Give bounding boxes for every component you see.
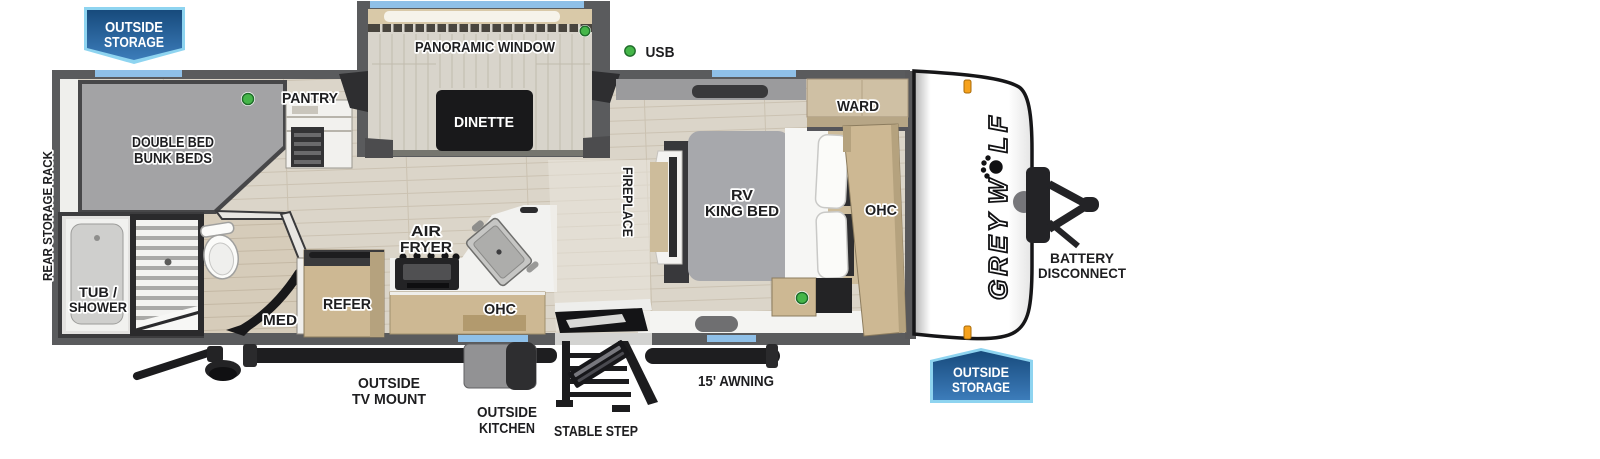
svg-text:KITCHEN: KITCHEN (479, 420, 535, 437)
svg-text:DINETTE: DINETTE (454, 114, 514, 131)
svg-text:DISCONNECT: DISCONNECT (1038, 265, 1126, 281)
svg-text:RV: RV (731, 187, 753, 204)
svg-text:BUNK BEDS: BUNK BEDS (134, 150, 212, 167)
svg-text:OUTSIDE: OUTSIDE (358, 375, 420, 392)
svg-text:PANTRY: PANTRY (282, 90, 338, 107)
svg-text:LF: LF (983, 111, 1013, 153)
svg-text:BATTERY: BATTERY (1050, 250, 1115, 266)
svg-text:AIR: AIR (411, 223, 441, 240)
svg-text:15' AWNING: 15' AWNING (698, 373, 774, 390)
svg-text:STORAGE: STORAGE (104, 34, 164, 51)
svg-text:FRYER: FRYER (400, 239, 452, 256)
svg-text:STORAGE: STORAGE (952, 380, 1010, 395)
svg-text:KING BED: KING BED (705, 203, 779, 220)
svg-text:FIREPLACE: FIREPLACE (620, 167, 636, 237)
svg-text:OHC: OHC (865, 203, 898, 219)
svg-text:SHOWER: SHOWER (69, 299, 127, 315)
svg-text:STABLE STEP: STABLE STEP (554, 423, 638, 440)
svg-text:REFER: REFER (323, 296, 371, 313)
svg-text:TUB /: TUB / (79, 284, 117, 300)
svg-text:W: W (983, 177, 1013, 204)
svg-text:PANORAMIC WINDOW: PANORAMIC WINDOW (415, 39, 556, 56)
svg-text:DOUBLE BED: DOUBLE BED (132, 134, 214, 151)
svg-text:USB: USB (646, 45, 675, 61)
svg-text:OUTSIDE: OUTSIDE (953, 365, 1009, 380)
svg-text:WARD: WARD (837, 99, 879, 115)
svg-text:REAR STORAGE RACK: REAR STORAGE RACK (40, 150, 55, 281)
svg-text:OUTSIDE: OUTSIDE (477, 404, 537, 421)
svg-text:OHC: OHC (484, 301, 516, 318)
svg-text:MED: MED (263, 312, 297, 329)
svg-text:GREY: GREY (983, 210, 1013, 300)
svg-text:TV MOUNT: TV MOUNT (352, 391, 426, 408)
